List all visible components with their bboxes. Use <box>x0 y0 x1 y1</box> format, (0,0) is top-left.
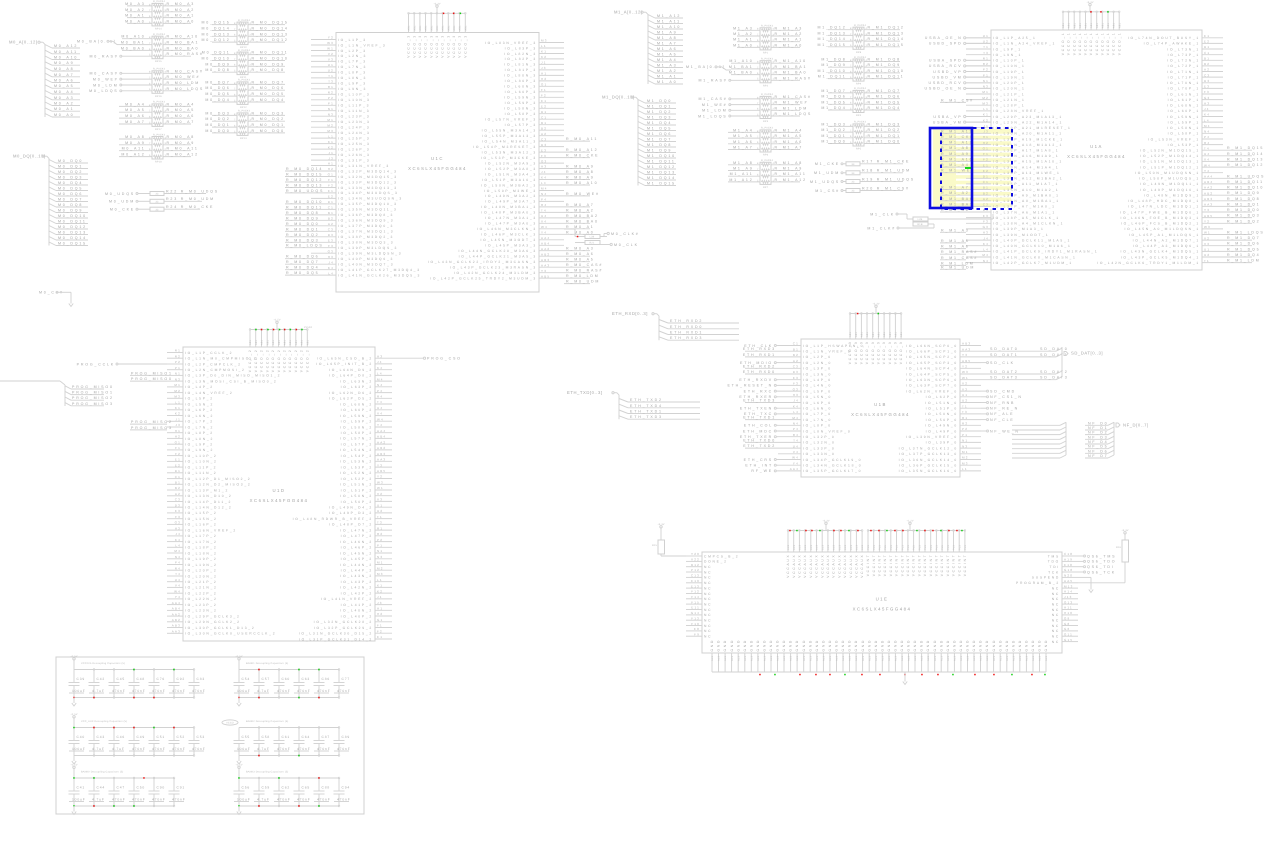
svg-text:IO_L35N_GCLK16_0: IO_L35N_GCLK16_0 <box>899 469 958 473</box>
svg-text:IO_L31N_VREF_3: IO_L31N_VREF_3 <box>338 164 390 168</box>
svg-text:C55: C55 <box>242 735 251 739</box>
svg-text:M1_DQ8: M1_DQ8 <box>647 143 672 147</box>
svg-text:F14: F14 <box>691 595 700 599</box>
svg-text:IO_L4P_2: IO_L4P_2 <box>185 385 214 389</box>
svg-text:IO_L42N_GCLK24_M3LDM_3: IO_L42N_GCLK24_M3LDM_3 <box>454 271 537 275</box>
svg-text:VCCAUX: VCCAUX <box>855 554 859 578</box>
svg-text:GND: GND <box>769 639 773 652</box>
svg-text:R_M1_WE#: R_M1_WE# <box>941 169 975 173</box>
svg-text:IO_L42P_GCLK25_TRDY2_M3UDM_3: IO_L42P_GCLK25_TRDY2_M3UDM_3 <box>430 276 537 280</box>
svg-text:VCCO_3: VCCO_3 <box>429 34 433 58</box>
svg-text:IO_L59P_1: IO_L59P_1 <box>1168 120 1200 124</box>
svg-text:AB1: AB1 <box>301 339 304 345</box>
svg-text:A13: A13 <box>947 656 950 661</box>
svg-text:PROG_MISO2: PROG_MISO2 <box>131 420 173 424</box>
svg-text:M4: M4 <box>982 253 989 257</box>
svg-text:AB1: AB1 <box>453 25 456 31</box>
svg-text:M1_A0: M1_A0 <box>733 43 753 47</box>
svg-text:A13: A13 <box>888 656 891 661</box>
svg-text:IO_L10P_3: IO_L10P_3 <box>338 93 370 97</box>
svg-text:470nF: 470nF <box>172 689 186 693</box>
svg-text:IO_L57P_2: IO_L57P_2 <box>341 442 373 446</box>
svg-text:F3: F3 <box>175 515 181 519</box>
svg-text:L4: L4 <box>793 410 799 414</box>
svg-text:IO_L59N_1: IO_L59N_1 <box>1167 115 1200 119</box>
svg-text:M0_BA0: M0_BA0 <box>121 46 146 50</box>
svg-text:P1: P1 <box>377 544 383 548</box>
svg-text:F9: F9 <box>694 633 700 637</box>
svg-text:E18: E18 <box>1064 563 1073 567</box>
svg-text:V2: V2 <box>377 492 383 496</box>
svg-text:Y20: Y20 <box>691 552 700 556</box>
svg-text:SD_DAT3: SD_DAT3 <box>990 376 1019 380</box>
svg-text:M1_DQ1: M1_DQ1 <box>647 105 672 109</box>
svg-text:PROG_MISO1: PROG_MISO1 <box>131 371 173 375</box>
svg-text:AB1: AB1 <box>266 339 269 345</box>
svg-text:IO_L49N_M1DQ11_1: IO_L49N_M1DQ11_1 <box>1140 182 1200 186</box>
svg-text:AB1: AB1 <box>419 25 422 31</box>
svg-text:RP4: RP4 <box>856 114 862 117</box>
svg-text:R_M1_DQ6: R_M1_DQ6 <box>868 95 901 99</box>
svg-text:IO_L23N_3: IO_L23N_3 <box>338 120 371 124</box>
svg-text:M0_DQ15: M0_DQ15 <box>58 242 87 246</box>
svg-text:R1: R1 <box>377 526 383 530</box>
svg-text:R_M0_DQ4: R_M0_DQ4 <box>286 266 319 270</box>
svg-text:IO_L30N_GCLK0_USERCCLK_2: IO_L30N_GCLK0_USERCCLK_2 <box>185 632 276 636</box>
svg-text:M1_CAS#: M1_CAS# <box>699 97 728 101</box>
svg-text:U13: U13 <box>833 545 836 550</box>
svg-text:AA3: AA3 <box>962 347 971 351</box>
svg-text:XC6SLX45FGG484: XC6SLX45FGG484 <box>851 412 910 417</box>
svg-text:M0_DQ3: M0_DQ3 <box>205 111 230 115</box>
svg-text:G3: G3 <box>793 387 799 391</box>
svg-text:IO_L21P_1: IO_L21P_1 <box>993 92 1025 96</box>
svg-text:ETH_INT: ETH_INT <box>745 464 773 468</box>
svg-text:W3: W3 <box>327 41 334 45</box>
svg-text:NC: NC <box>704 619 712 623</box>
svg-text:U1: U1 <box>962 393 968 397</box>
svg-text:N3: N3 <box>377 555 383 559</box>
svg-text:M0_DQ2: M0_DQ2 <box>205 117 230 121</box>
svg-text:A13: A13 <box>960 656 963 661</box>
svg-text:GND: GND <box>926 639 930 652</box>
svg-text:AB3: AB3 <box>541 258 550 262</box>
svg-text:A13: A13 <box>901 656 904 661</box>
svg-text:IO_L44P_A3_M1DQ6_1: IO_L44P_A3_M1DQ6_1 <box>1133 244 1200 248</box>
svg-text:IO_L48N_RDWR_B_VREF_2: IO_L48N_RDWR_B_VREF_2 <box>293 517 373 521</box>
svg-text:P2: P2 <box>328 96 334 100</box>
svg-text:R_M0_CKE: R_M0_CKE <box>566 154 599 158</box>
svg-text:IO_L57N_VREF_3: IO_L57N_VREF_3 <box>485 118 537 122</box>
svg-text:P1: P1 <box>175 366 181 370</box>
svg-text:U4: U4 <box>793 444 799 448</box>
svg-text:VCCO_2: VCCO_2 <box>288 349 292 373</box>
svg-text:M3: M3 <box>174 395 181 399</box>
svg-text:470nF: 470nF <box>172 797 186 801</box>
svg-text:R18 R_M1_UDM: R18 R_M1_UDM <box>862 169 911 173</box>
svg-text:Y3: Y3 <box>541 269 547 273</box>
svg-text:RP7: RP7 <box>763 186 769 189</box>
svg-text:U13: U13 <box>804 545 807 550</box>
svg-text:VCCINT: VCCINT <box>883 554 887 577</box>
svg-text:GND: GND <box>710 639 714 652</box>
svg-text:R_M1_DQ7: R_M1_DQ7 <box>868 89 901 93</box>
svg-text:IO_L24N_3: IO_L24N_3 <box>338 131 371 135</box>
svg-text:IO_L58P_1: IO_L58P_1 <box>1168 132 1200 136</box>
svg-text:T4: T4 <box>377 400 383 404</box>
svg-text:A13: A13 <box>744 656 747 661</box>
svg-text:R_M1_CAS#: R_M1_CAS# <box>775 95 812 99</box>
svg-text:M1_A2: M1_A2 <box>657 69 677 73</box>
svg-text:IO_L43N_2: IO_L43N_2 <box>340 574 373 578</box>
svg-text:P2: P2 <box>377 538 383 542</box>
svg-text:M0_DQ7: M0_DQ7 <box>58 198 83 202</box>
svg-text:R_M1_BA1: R_M1_BA1 <box>775 65 808 69</box>
svg-text:M0_A[0..12]: M0_A[0..12] <box>9 40 38 45</box>
svg-text:C40: C40 <box>77 735 86 739</box>
svg-text:M0_A11: M0_A11 <box>122 147 146 151</box>
svg-text:G1: G1 <box>175 440 181 444</box>
svg-text:VCCO_3: VCCO_3 <box>407 34 411 58</box>
svg-text:R_M1_A11: R_M1_A11 <box>775 172 807 176</box>
svg-text:C65: C65 <box>302 786 311 790</box>
svg-text:ETH_RXC: ETH_RXC <box>744 389 773 393</box>
svg-text:G8: G8 <box>1064 622 1070 626</box>
svg-text:AB5: AB5 <box>962 359 971 363</box>
svg-text:GND: GND <box>1025 639 1029 652</box>
svg-text:M1_DQ0: M1_DQ0 <box>821 140 846 144</box>
svg-text:V2: V2 <box>962 382 968 386</box>
svg-text:IO_L74N_DOUT_BUSY_1: IO_L74N_DOUT_BUSY_1 <box>1128 36 1200 40</box>
svg-text:AB1: AB1 <box>1079 22 1082 28</box>
svg-text:IO_L72P_1: IO_L72P_1 <box>1168 64 1200 68</box>
svg-text:R_M0_DQ6: R_M0_DQ6 <box>286 255 319 259</box>
svg-text:AB4: AB4 <box>1204 180 1213 184</box>
svg-text:M1_DQ3: M1_DQ3 <box>821 122 846 126</box>
svg-text:GND: GND <box>1044 639 1048 652</box>
svg-text:VCCO_3: VCCO_3 <box>412 34 416 58</box>
svg-text:IO_L51N_M1DQ13_1: IO_L51N_M1DQ13_1 <box>1140 160 1200 164</box>
svg-text:R_M1_A9: R_M1_A9 <box>775 167 804 171</box>
svg-text:IO_L72N_1: IO_L72N_1 <box>1167 59 1200 63</box>
svg-text:RP5: RP5 <box>856 148 862 151</box>
svg-text:M0_DQ12: M0_DQ12 <box>202 38 231 42</box>
svg-text:L4: L4 <box>175 544 181 548</box>
svg-text:NC: NC <box>704 565 712 569</box>
svg-text:VCC_AUX Decoupling Capacitors: VCC_AUX Decoupling Capacitors (5) <box>81 720 127 723</box>
svg-text:M1_A1: M1_A1 <box>733 38 753 42</box>
svg-text:470nF: 470nF <box>172 747 186 751</box>
svg-text:A13: A13 <box>764 656 767 661</box>
svg-text:33: 33 <box>851 172 855 175</box>
svg-text:IO_L30N_A20_M1A11_1: IO_L30N_A20_M1A11_1 <box>993 132 1063 136</box>
svg-text:L2B: L2B <box>590 236 595 239</box>
svg-text:IO_L36N_M3DQ9_3: IO_L36N_M3DQ9_3 <box>338 219 394 223</box>
svg-text:R_M0_DQ6: R_M0_DQ6 <box>252 86 285 90</box>
svg-text:IO_L31P_A19_M1CKE_1: IO_L31P_A19_M1CKE_1 <box>993 137 1064 141</box>
svg-text:IO_L10P_1: IO_L10P_1 <box>993 59 1025 63</box>
svg-text:C64: C64 <box>302 735 311 739</box>
svg-text:GND: GND <box>815 639 819 652</box>
svg-text:R_M1_DQ0: R_M1_DQ0 <box>1227 208 1260 212</box>
svg-text:AB1: AB1 <box>1101 22 1104 28</box>
svg-text:33: 33 <box>155 201 159 204</box>
svg-text:R_M0_A8: R_M0_A8 <box>167 135 196 139</box>
svg-text:E2: E2 <box>983 169 989 173</box>
svg-text:H11: H11 <box>1064 606 1073 610</box>
svg-text:IO_L30P_A21_M1RESET_1: IO_L30P_A21_M1RESET_1 <box>993 126 1072 130</box>
svg-text:R_M1_A3: R_M1_A3 <box>941 228 970 232</box>
svg-text:Y4: Y4 <box>1204 169 1210 173</box>
svg-text:R_M1_DQ12: R_M1_DQ12 <box>868 26 905 30</box>
svg-text:M1: M1 <box>327 118 334 122</box>
svg-text:Y2: Y2 <box>328 36 334 40</box>
svg-text:G18: G18 <box>1064 568 1073 572</box>
svg-text:M0_UDM: M0_UDM <box>109 200 135 204</box>
svg-text:A13: A13 <box>940 656 943 661</box>
svg-text:M0_A2: M0_A2 <box>54 102 74 106</box>
svg-text:M0_DQ0: M0_DQ0 <box>58 159 83 163</box>
svg-text:R_M1_DQ14: R_M1_DQ14 <box>868 37 905 41</box>
svg-text:IO_L21N_2: IO_L21N_2 <box>185 586 218 590</box>
svg-text:M1_A0: M1_A0 <box>657 80 677 84</box>
svg-text:M0_DQ4: M0_DQ4 <box>58 181 83 185</box>
svg-text:F3: F3 <box>983 220 989 224</box>
svg-text:NF_D0: NF_D0 <box>1088 421 1108 425</box>
svg-text:M1_A11: M1_A11 <box>657 20 681 24</box>
svg-text:IO_L49N_D4_2: IO_L49N_D4_2 <box>329 506 373 510</box>
svg-text:GND: GND <box>887 639 891 652</box>
svg-text:M1: M1 <box>982 90 989 94</box>
svg-text:M0_A7: M0_A7 <box>54 73 74 77</box>
svg-text:470nF: 470nF <box>297 797 311 801</box>
svg-text:R_M0_A7: R_M0_A7 <box>167 120 196 124</box>
svg-text:GND: GND <box>730 639 734 652</box>
svg-text:G9: G9 <box>1064 616 1070 620</box>
svg-text:IO_L9N_2: IO_L9N_2 <box>185 448 214 452</box>
svg-text:IO_L43P_GCLK5_M1DQ4_1: IO_L43P_GCLK5_M1DQ4_1 <box>1121 255 1200 259</box>
svg-text:IO_L39N_VREF_0: IO_L39N_VREF_0 <box>906 435 958 439</box>
svg-text:VCCINT: VCCINT <box>957 554 961 577</box>
svg-text:M1_DQ[0..15]: M1_DQ[0..15] <box>602 95 635 100</box>
svg-text:D3: D3 <box>793 370 799 374</box>
svg-text:470nF: 470nF <box>192 689 206 693</box>
svg-text:USBD_VP: USBD_VP <box>933 70 962 74</box>
svg-text:IO_L52N_M1DQ15_1: IO_L52N_M1DQ15_1 <box>1140 149 1200 153</box>
svg-text:M1_DQ14: M1_DQ14 <box>818 37 847 41</box>
svg-text:C58: C58 <box>262 735 271 739</box>
svg-text:M0_A7: M0_A7 <box>125 120 145 124</box>
svg-text:IO_L33N_A14_M1A4_1: IO_L33N_A14_M1A4_1 <box>993 165 1060 169</box>
svg-text:IO_L35P_A11_M1A7_1: IO_L35P_A11_M1A7_1 <box>993 182 1059 186</box>
svg-text:ETH_TXD1: ETH_TXD1 <box>743 416 776 420</box>
svg-text:A13: A13 <box>986 656 989 661</box>
svg-text:G3: G3 <box>983 225 989 229</box>
svg-text:M0_DQ4: M0_DQ4 <box>205 98 230 102</box>
svg-text:A13: A13 <box>718 656 721 661</box>
svg-text:IO_L38P_M3DQ2_3: IO_L38P_M3DQ2_3 <box>338 235 394 239</box>
svg-text:QS6_TMS: QS6_TMS <box>1087 554 1116 558</box>
svg-text:IO_L1N_M0_CMPMISO_2: IO_L1N_M0_CMPMISO_2 <box>185 357 257 361</box>
svg-text:AA4: AA4 <box>541 236 550 240</box>
svg-text:M1_A1: M1_A1 <box>657 75 677 79</box>
svg-text:R_M0_DQ8: R_M0_DQ8 <box>286 211 319 215</box>
svg-text:QS6_TDI: QS6_TDI <box>1087 565 1115 569</box>
svg-text:C83: C83 <box>197 677 206 681</box>
svg-text:AB1: AB1 <box>861 331 864 337</box>
svg-text:VCCINT: VCCINT <box>946 554 950 577</box>
svg-text:RF_WE: RF_WE <box>751 469 773 473</box>
svg-text:R_M0_A7: R_M0_A7 <box>566 203 595 207</box>
svg-text:R_M0_A6: R_M0_A6 <box>566 252 595 256</box>
svg-text:IO_L47P_FWE_B_M1DQ0_1: IO_L47P_FWE_B_M1DQ0_1 <box>1120 210 1200 214</box>
svg-text:IO_L2P_CMPCLK_2: IO_L2P_CMPCLK_2 <box>185 362 242 366</box>
svg-text:IO_L65N_SCP2_0: IO_L65N_SCP2_0 <box>906 355 958 359</box>
svg-text:USBA_VM: USBA_VM <box>933 120 963 124</box>
svg-text:M1_A10: M1_A10 <box>657 25 681 29</box>
svg-text:N4: N4 <box>377 383 383 387</box>
svg-text:VCCINT: VCCINT <box>923 554 927 577</box>
svg-text:NC: NC <box>704 635 712 639</box>
svg-text:M1_A6: M1_A6 <box>733 140 753 144</box>
svg-text:M0_A10: M0_A10 <box>54 56 78 60</box>
svg-text:IO_L11N_3: IO_L11N_3 <box>338 109 370 113</box>
svg-text:F1: F1 <box>377 624 383 628</box>
svg-text:IO_L52P_M1DQ14_1: IO_L52P_M1DQ14_1 <box>1140 154 1200 158</box>
svg-text:470nF: 470nF <box>337 689 351 693</box>
svg-text:IO_L52N_M3A9_3: IO_L52N_M3A9_3 <box>485 161 537 165</box>
svg-text:B2: B2 <box>983 191 989 195</box>
svg-text:M1_DQ9: M1_DQ9 <box>647 149 672 153</box>
svg-text:M1_CLK#: M1_CLK# <box>867 226 896 230</box>
svg-text:IO_L53N_VREF_1: IO_L53N_VREF_1 <box>1148 137 1200 141</box>
svg-text:AB1: AB1 <box>249 339 252 345</box>
svg-text:BANK1 Decoupling Capacitors (5: BANK1 Decoupling Capacitors (5) <box>246 662 288 665</box>
svg-text:C62: C62 <box>282 786 291 790</box>
svg-text:H3: H3 <box>175 526 181 530</box>
svg-text:XC6SLX45FGG484: XC6SLX45FGG484 <box>1067 154 1126 159</box>
svg-text:GND: GND <box>880 639 884 652</box>
svg-text:IO_L37N_GCLK12_0: IO_L37N_GCLK12_0 <box>899 446 958 450</box>
svg-text:M0_DQ11: M0_DQ11 <box>58 220 87 224</box>
svg-text:M1_DQ10: M1_DQ10 <box>818 69 847 73</box>
svg-text:DONE_2: DONE_2 <box>704 560 728 564</box>
svg-text:L1: L1 <box>377 578 383 582</box>
svg-text:M0_DQ14: M0_DQ14 <box>202 27 231 31</box>
svg-text:W4: W4 <box>377 417 384 421</box>
svg-text:+3.3V: +3.3V <box>1086 1 1094 4</box>
svg-text:L4: L4 <box>377 372 383 376</box>
svg-text:R_M0_A2: R_M0_A2 <box>566 208 595 212</box>
svg-text:USBA_VP: USBA_VP <box>933 115 962 119</box>
svg-text:M1_A[0..12]: M1_A[0..12] <box>614 10 643 15</box>
svg-text:IO_L19P_2: IO_L19P_2 <box>185 557 217 561</box>
svg-text:IO_L51P_0: IO_L51P_0 <box>926 407 958 411</box>
svg-text:NC: NC <box>1052 608 1060 612</box>
svg-text:IO_L42P_GCLK7_M1UDM_1: IO_L42P_GCLK7_M1UDM_1 <box>993 261 1073 265</box>
svg-text:IO_L49P_D3_2: IO_L49P_D3_2 <box>329 511 373 515</box>
svg-text:VCCAUX: VCCAUX <box>843 554 847 578</box>
svg-text:R_M1_DQ4: R_M1_DQ4 <box>1227 253 1260 257</box>
svg-text:R_M1_A2: R_M1_A2 <box>941 191 970 195</box>
svg-text:R1: R1 <box>962 416 968 420</box>
svg-text:R_M0_DQ15: R_M0_DQ15 <box>252 21 289 25</box>
svg-text:C91: C91 <box>177 786 186 790</box>
svg-text:E1: E1 <box>328 189 334 193</box>
svg-text:VCCO_2: VCCO_2 <box>283 349 287 373</box>
svg-text:VCCO_1: VCCO_1 <box>1117 32 1121 56</box>
svg-text:P13: P13 <box>930 545 933 550</box>
svg-text:M0_DQ9: M0_DQ9 <box>205 62 230 66</box>
svg-text:ETH_RXD1: ETH_RXD1 <box>670 331 703 335</box>
svg-text:IO_L31P_3: IO_L31P_3 <box>338 158 370 162</box>
svg-text:AB1: AB1 <box>883 331 886 337</box>
svg-text:W3: W3 <box>1204 225 1211 229</box>
svg-text:M0_A11: M0_A11 <box>54 50 78 54</box>
svg-text:M1_LDQS: M1_LDQS <box>698 114 727 118</box>
svg-text:470nF: 470nF <box>112 689 126 693</box>
svg-text:V2: V2 <box>1204 236 1210 240</box>
svg-text:IO_L32N_A16_M1A9_1: IO_L32N_A16_M1A9_1 <box>993 154 1060 158</box>
svg-text:A13: A13 <box>954 656 957 661</box>
svg-text:R_M0_A5: R_M0_A5 <box>167 108 196 112</box>
svg-text:R_M1_A5: R_M1_A5 <box>941 239 970 243</box>
svg-text:VCCO_3: VCCO_3 <box>463 34 467 58</box>
svg-text:J4: J4 <box>541 170 547 174</box>
svg-text:G3: G3 <box>175 521 181 525</box>
svg-text:VCCO_3: VCCO_3 <box>424 34 428 58</box>
svg-text:M1_DQ6: M1_DQ6 <box>821 95 846 99</box>
svg-text:IO_L43P_2: IO_L43P_2 <box>341 580 373 584</box>
svg-text:R_M0_DQ13: R_M0_DQ13 <box>286 184 323 188</box>
svg-text:R2: R2 <box>377 532 383 536</box>
svg-text:M1_DQ12: M1_DQ12 <box>647 165 676 169</box>
svg-text:IO_L33N_0: IO_L33N_0 <box>803 452 836 456</box>
svg-text:470nF: 470nF <box>152 797 166 801</box>
svg-text:RP16: RP16 <box>155 95 162 98</box>
svg-text:A13: A13 <box>829 656 832 661</box>
svg-text:470nF: 470nF <box>192 747 206 751</box>
svg-text:NC: NC <box>1052 640 1060 644</box>
svg-text:R_M0_A0: R_M0_A0 <box>167 19 196 23</box>
svg-text:NF_D2: NF_D2 <box>1088 431 1108 435</box>
svg-text:U4: U4 <box>1204 152 1210 156</box>
svg-text:M0_DQ11: M0_DQ11 <box>202 51 231 55</box>
svg-text:ETH_RXD[0..3]: ETH_RXD[0..3] <box>612 311 648 316</box>
svg-text:F1: F1 <box>541 88 547 92</box>
svg-text:M0_A6: M0_A6 <box>125 114 145 118</box>
svg-text:AB1: AB1 <box>1068 22 1071 28</box>
svg-text:VCCO_3: VCCO_3 <box>435 34 439 58</box>
svg-text:P13: P13 <box>896 545 899 550</box>
svg-text:IO_L1P_HSWAPEN_0: IO_L1P_HSWAPEN_0 <box>803 344 864 348</box>
svg-text:A13: A13 <box>934 656 937 661</box>
svg-text:M1_A2: M1_A2 <box>733 32 753 36</box>
svg-text:ETH_TXD[0..3]: ETH_TXD[0..3] <box>567 390 603 395</box>
svg-text:M2: M2 <box>982 96 989 100</box>
svg-text:AB1: AB1 <box>1113 22 1116 28</box>
svg-text:IO_L21N_1: IO_L21N_1 <box>993 98 1026 102</box>
svg-text:R_M0_DQ12: R_M0_DQ12 <box>286 178 323 182</box>
svg-text:IO_L64N_D9_2: IO_L64N_D9_2 <box>329 368 373 372</box>
svg-text:D1: D1 <box>328 200 334 204</box>
svg-text:W3: W3 <box>377 481 384 485</box>
svg-text:M0_BA1: M0_BA1 <box>121 41 146 45</box>
svg-text:IO_L28N_VREF_1: IO_L28N_VREF_1 <box>993 109 1045 113</box>
svg-text:P13: P13 <box>941 545 944 550</box>
svg-text:NF_D[0..7]: NF_D[0..7] <box>1123 423 1149 428</box>
svg-text:E11: E11 <box>691 606 700 610</box>
